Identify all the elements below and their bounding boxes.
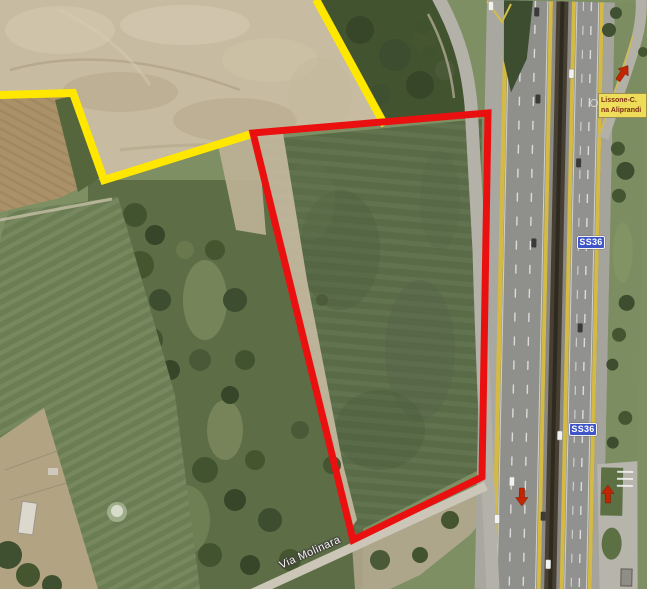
exit-label-line2: na Aliprandi xyxy=(601,106,646,116)
map-canvas[interactable]: SS36 SS36 Lissone-C. na Aliprandi Via Mo… xyxy=(0,0,647,589)
route-badge-ss36-lower: SS36 xyxy=(569,423,597,436)
exit-label-line1: Lissone-C. xyxy=(601,96,646,106)
rest-area-building xyxy=(621,569,632,586)
aerial-imagery xyxy=(0,0,647,589)
exit-label: Lissone-C. na Aliprandi xyxy=(598,93,647,118)
route-badge-ss36-upper: SS36 xyxy=(577,236,605,249)
exit-marker-icon xyxy=(590,99,598,107)
rest-area xyxy=(595,460,641,589)
